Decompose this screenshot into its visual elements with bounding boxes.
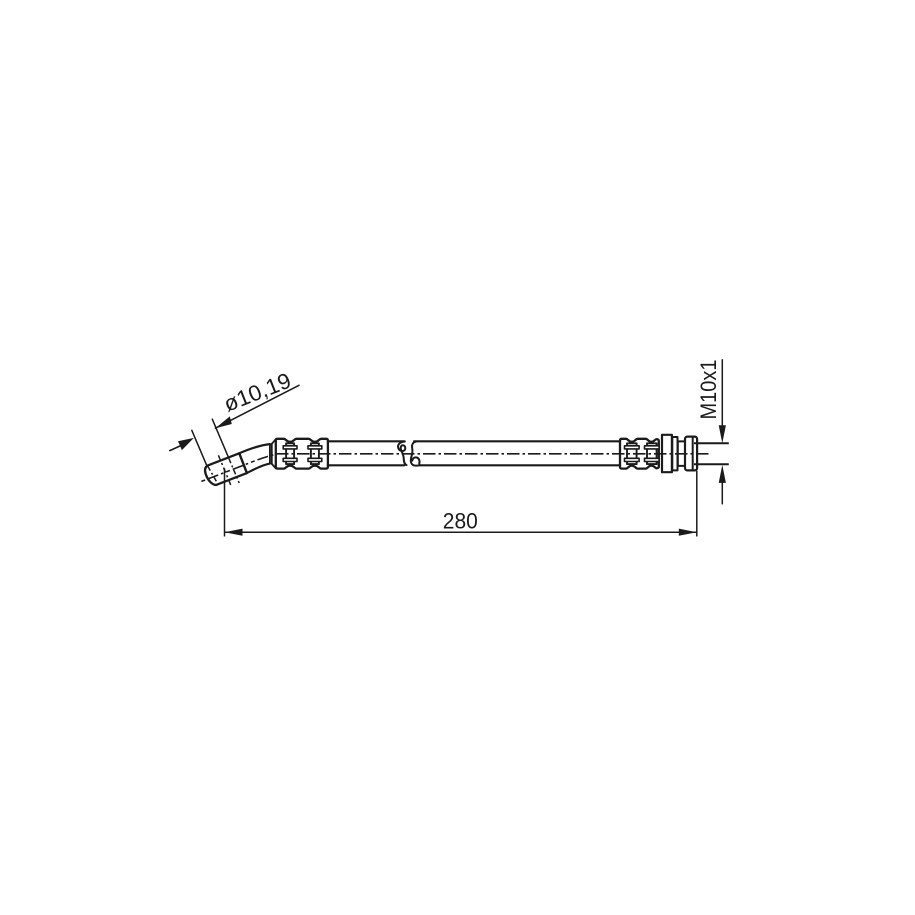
svg-text:M10x1: M10x1 <box>696 360 721 420</box>
svg-text:280: 280 <box>443 508 478 533</box>
